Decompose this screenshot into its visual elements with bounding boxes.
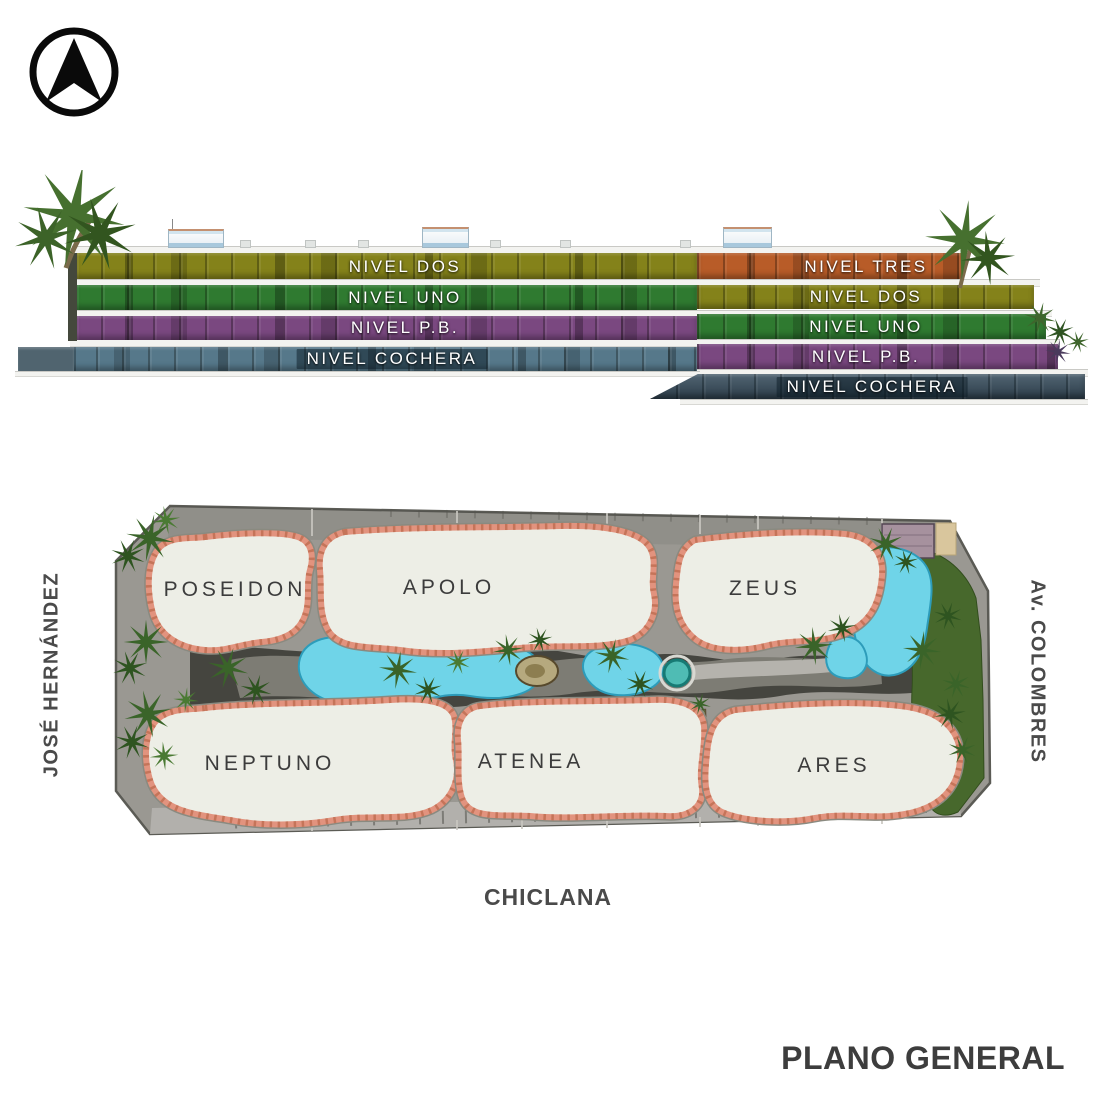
- site-plan: POSEIDON APOLO ZEUS NEPTUNO ATENEA ARES: [100, 490, 1000, 850]
- street-label-av-colombres: Av. COLOMBRES: [1026, 552, 1049, 792]
- fountain-rock: [525, 664, 545, 678]
- building-label-apolo: APOLO: [403, 576, 495, 599]
- round-pool: [664, 660, 690, 686]
- building-label-poseidon: POSEIDON: [164, 578, 307, 601]
- building-label-atenea: ATENEA: [478, 750, 584, 773]
- street-label-jose-hernandez: JOSÉ HERNÁNDEZ: [41, 545, 64, 805]
- pool-middle: [583, 644, 663, 696]
- building-label-neptuno: NEPTUNO: [205, 752, 336, 775]
- lagoon-pool-right-lobe: [826, 637, 867, 678]
- plano-general-canvas: NIVEL DOS NIVEL UNO NIVEL P.B. NIVEL COC…: [0, 0, 1100, 1100]
- building-label-ares: ARES: [797, 754, 870, 777]
- elevation-palm-trees: [0, 170, 1100, 420]
- street-label-chiclana: CHICLANA: [448, 884, 648, 911]
- page-title: PLANO GENERAL: [781, 1040, 1065, 1077]
- compass-north-icon: [22, 20, 132, 130]
- sand-deck: [936, 523, 956, 555]
- building-label-zeus: ZEUS: [729, 577, 801, 600]
